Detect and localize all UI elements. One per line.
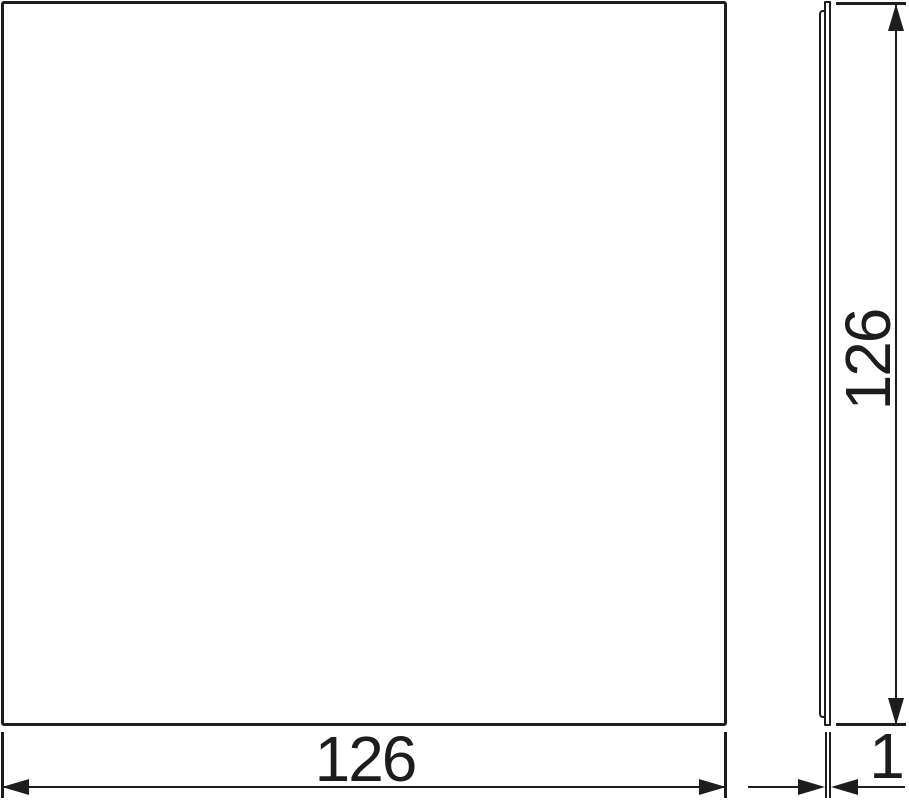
height-dimension-label: 126 bbox=[836, 310, 900, 411]
thickness-arrowhead-pointing-right-icon bbox=[798, 779, 825, 795]
width-arrowhead-left-icon bbox=[2, 779, 29, 795]
width-arrowhead-right-icon bbox=[699, 779, 726, 795]
side-view-plate bbox=[824, 1, 831, 726]
height-arrowhead-up-icon bbox=[888, 4, 904, 31]
thickness-arrowhead-pointing-left-icon bbox=[831, 779, 858, 795]
thickness-dimension-line-left-segment bbox=[748, 786, 798, 788]
thickness-dimension-label: 1 bbox=[869, 724, 903, 788]
width-dimension-label: 126 bbox=[315, 727, 416, 791]
thickness-extension-line-left bbox=[825, 732, 827, 798]
technical-drawing-canvas: 126 126 1 bbox=[0, 0, 909, 800]
front-view-panel-outline bbox=[1, 1, 727, 726]
